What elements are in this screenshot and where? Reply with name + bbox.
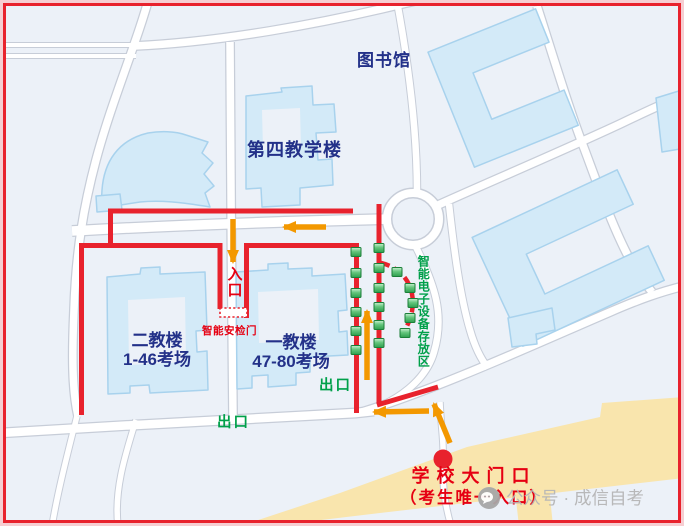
label-teaching-building-1: 一教楼 47-80考场: [226, 333, 356, 371]
label-exit-east: 出口: [319, 379, 352, 395]
security-gate-marker: [220, 308, 247, 317]
watermark-text: 公众号 · 成信自考: [506, 485, 644, 510]
wechat-official-account-icon: [477, 486, 501, 510]
label-library: 图书馆: [357, 52, 411, 71]
building-1-rooms: 47-80考场: [226, 352, 356, 371]
map-graphics: [0, 0, 684, 526]
device-storage-markers: [351, 244, 418, 355]
building-east: [472, 170, 668, 346]
label-teaching-building-4: 第四教学楼: [247, 141, 342, 161]
building-2-rooms: 1-46考场: [93, 350, 221, 369]
arrow-west-bottom: [374, 411, 429, 412]
label-exit-south: 出口: [217, 416, 250, 432]
school-gate-line1: 学校大门口: [366, 467, 582, 487]
label-entrance: 入口: [225, 266, 242, 298]
label-device-storage-area: 智能电子设备存放区: [416, 255, 429, 368]
building-east-edge: [656, 90, 684, 152]
watermark: 公众号 · 成信自考: [477, 485, 644, 510]
label-security-gate: 智能安检门: [202, 326, 257, 338]
campus-map: 图书馆 第四教学楼 二教楼 1-46考场 一教楼 47-80考场 入口 智能安检…: [0, 0, 684, 526]
